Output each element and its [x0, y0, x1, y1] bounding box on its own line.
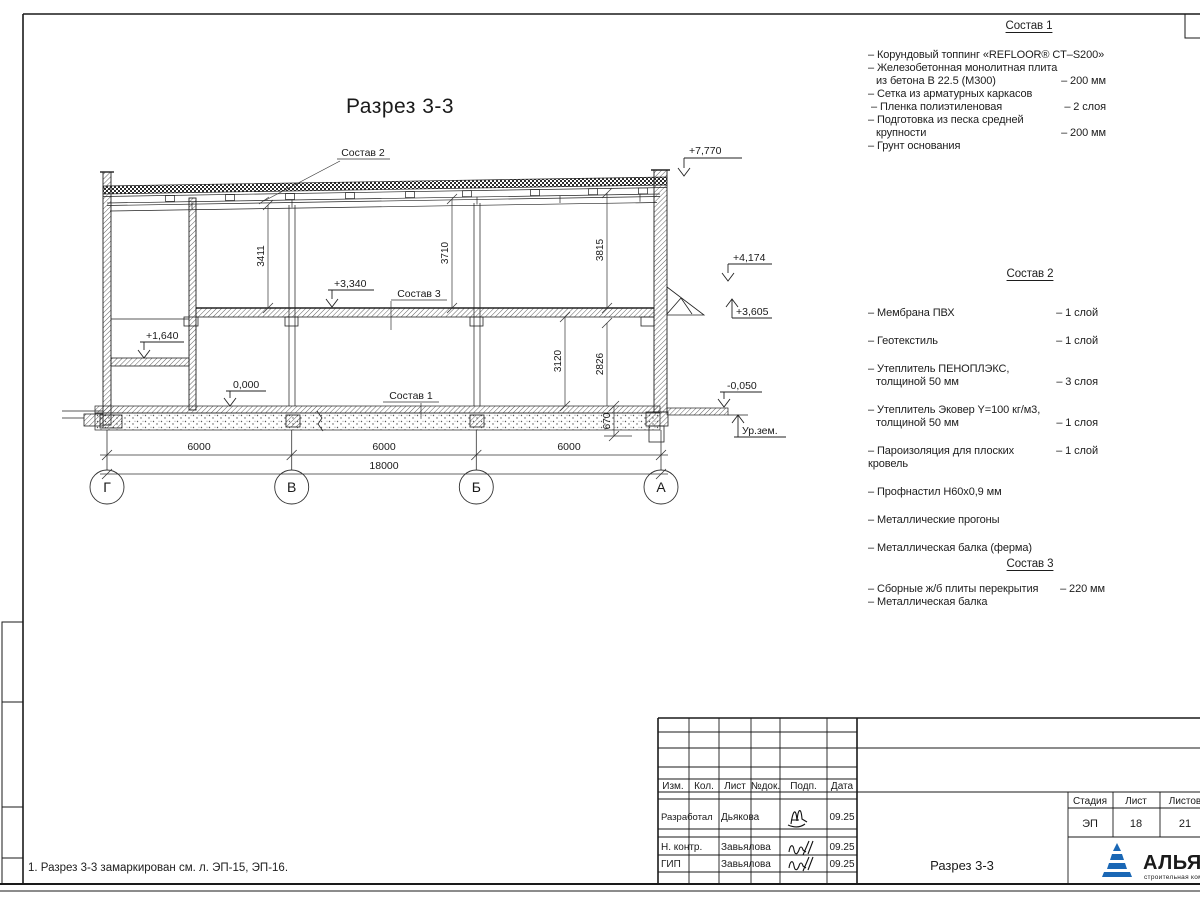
axis-letter: Б	[472, 479, 481, 495]
tb-sheet-value: 18	[1130, 818, 1142, 830]
svg-text:Ур.зем.: Ур.зем.	[742, 425, 778, 437]
list-item: – Металлическая балка	[868, 596, 1120, 609]
label-sostav3: Состав 3	[397, 288, 441, 300]
tb-col-izm: Изм.	[662, 781, 683, 792]
svg-text:6000: 6000	[187, 441, 211, 453]
list-item: – Металлические прогоны	[868, 514, 1120, 527]
tb-date-gip: 09.25	[829, 859, 854, 870]
mark-7770: +7,770	[678, 145, 742, 176]
list-item: – Железобетонная монолитная плита	[868, 62, 1118, 75]
walls	[100, 170, 670, 425]
mark-ground-level: Ур.зем.	[732, 415, 786, 437]
mark-0000: 0,000	[224, 379, 266, 406]
composition-1-title: Состав 1	[904, 20, 1154, 33]
tb-stage-header: Стадия	[1073, 796, 1107, 807]
tb-role-gip: ГИП	[661, 859, 681, 870]
axis-dimensions: 6000 6000 6000 18000 Г В Б А	[90, 430, 678, 504]
axis-letter: Г	[103, 479, 111, 495]
list-item: – Профнастил Н60х0,9 мм	[868, 486, 1120, 499]
company-logo: АЛЬЯНС строительная компания	[1102, 843, 1200, 881]
svg-text:+3,340: +3,340	[334, 278, 367, 290]
label-sostav2: Состав 2	[341, 147, 385, 159]
tb-sheets-value: 21	[1179, 818, 1191, 830]
tb-date-developer: 09.25	[829, 812, 854, 823]
tb-date-ncontr: 09.25	[829, 842, 854, 853]
tb-role-developer: Разработал	[661, 812, 713, 823]
svg-text:3815: 3815	[595, 238, 606, 261]
svg-text:2826: 2826	[595, 352, 606, 375]
mark-4174: +4,174	[722, 252, 772, 281]
tb-col-data: Дата	[831, 781, 854, 792]
svg-text:+7,770: +7,770	[689, 145, 722, 157]
svg-text:18000: 18000	[369, 460, 398, 472]
axis-letter: В	[287, 479, 296, 495]
list-item: – Подготовка из песка средней	[868, 114, 1118, 127]
svg-text:3120: 3120	[553, 349, 564, 372]
canopy-truss	[667, 287, 704, 315]
axis-bubbles: Г В Б А	[90, 470, 678, 504]
composition-2-title: Состав 2	[904, 268, 1156, 281]
mark-1640: +1,640	[138, 330, 184, 358]
sheet-note: 1. Разрез 3-3 замаркирован см. л. ЭП-15,…	[28, 862, 288, 874]
svg-text:0,000: 0,000	[233, 379, 259, 391]
tb-stage-value: ЭП	[1082, 818, 1098, 830]
list-item: – Пароизоляция для плоских кровель– 1 сл…	[868, 445, 1120, 471]
composition-list-1: Состав 1 – Корундовый топпинг «REFLOOR® …	[868, 20, 1118, 153]
svg-text:3710: 3710	[440, 241, 451, 264]
svg-text:-0,050: -0,050	[727, 380, 757, 392]
composition-list-3: Состав 3 – Сборные ж/б плиты перекрытия–…	[868, 558, 1120, 609]
tb-col-podp: Подп.	[790, 781, 817, 792]
label-sostav1: Состав 1	[389, 390, 433, 402]
tb-name-gip: Завьялова	[721, 859, 771, 870]
list-item: из бетона В 22.5 (М300)– 200 мм	[868, 75, 1118, 88]
list-item: – Геотекстиль– 1 слой	[868, 335, 1120, 348]
mark-m0050: -0,050	[718, 380, 762, 407]
list-item: – Грунт основания	[868, 140, 1118, 153]
list-item: – Металлическая балка (ферма)	[868, 542, 1120, 555]
tb-name-ncontr: Завьялова	[721, 842, 771, 853]
signature-gip	[789, 857, 813, 871]
mezzanine-slab	[111, 358, 189, 366]
list-item: – Сетка из арматурных каркасов	[868, 88, 1118, 101]
svg-text:+3,605: +3,605	[736, 306, 769, 318]
list-item: – Пленка полиэтиленовая– 2 слоя	[868, 101, 1118, 114]
tb-doc-name: Разрез 3-3	[930, 858, 994, 873]
list-item: – Корундовый топпинг «REFLOOR® CT–S200»	[868, 49, 1118, 62]
list-item: крупности– 200 мм	[868, 127, 1118, 140]
tb-role-ncontr: Н. контр.	[661, 842, 702, 853]
axis-letter: А	[656, 479, 666, 495]
list-item: – Сборные ж/б плиты перекрытия– 220 мм	[868, 583, 1120, 596]
list-item: – Утеплитель ПЕНОПЛЭКС, толщиной 50 мм– …	[868, 363, 1120, 389]
tb-sheets-header: Листов	[1169, 796, 1200, 807]
tb-name-developer: Дьякова	[721, 812, 760, 823]
svg-text:3411: 3411	[256, 245, 267, 267]
tb-col-list: Лист	[724, 781, 746, 792]
tb-sheet-header: Лист	[1125, 796, 1147, 807]
logo-brand-subtext: строительная компания	[1144, 874, 1200, 881]
tb-col-ndok: №док.	[751, 781, 780, 792]
logo-brand-text: АЛЬЯНС	[1143, 852, 1200, 874]
drawing-sheet: Разрез 3-3	[0, 0, 1200, 900]
svg-text:+1,640: +1,640	[146, 330, 179, 342]
composition-list-2: Состав 2 – Мембрана ПВХ– 1 слой – Геотек…	[868, 268, 1120, 570]
ground-floor	[62, 406, 748, 442]
composition-3-title: Состав 3	[904, 558, 1156, 571]
mark-3340: +3,340	[326, 278, 374, 307]
apron	[667, 408, 748, 415]
section-title: Разрез 3-3	[346, 95, 454, 118]
svg-text:6000: 6000	[557, 441, 581, 453]
tb-col-kol: Кол.	[694, 781, 714, 792]
mark-3605: +3,605	[726, 299, 772, 318]
columns	[289, 203, 480, 406]
roof	[103, 177, 667, 211]
logo-pyramid-icon	[1102, 843, 1132, 877]
svg-text:+4,174: +4,174	[733, 252, 766, 264]
left-margin-stamp-boxes	[2, 622, 23, 884]
signature-developer	[788, 811, 807, 827]
list-item: – Утеплитель Эковер Y=100 кг/м3, толщино…	[868, 404, 1120, 430]
list-item: – Мембрана ПВХ– 1 слой	[868, 307, 1120, 320]
svg-text:6000: 6000	[372, 441, 396, 453]
signature-ncontr	[789, 841, 813, 855]
svg-text:670: 670	[602, 412, 613, 429]
